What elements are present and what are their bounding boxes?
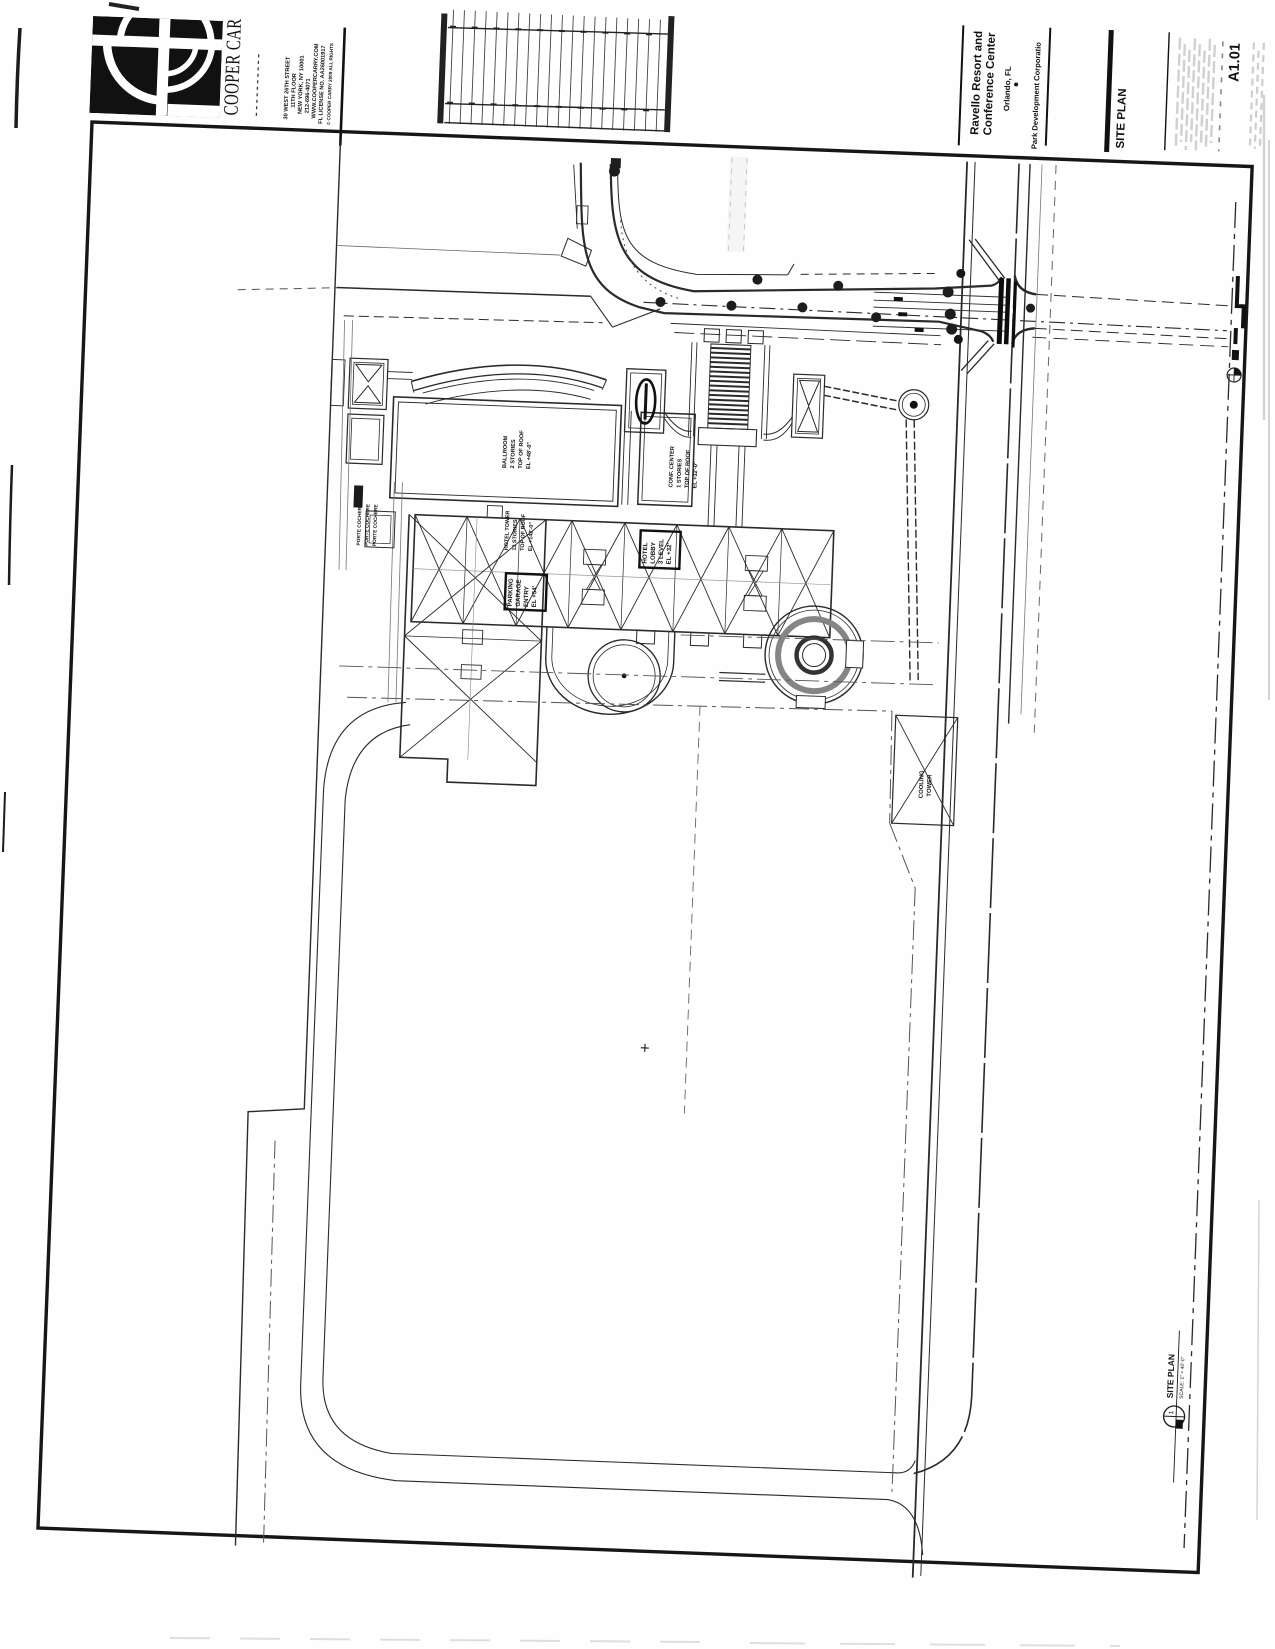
svg-text:PORTE COCHERE: PORTE COCHERE	[364, 503, 372, 546]
svg-text:HOTEL TOWER: HOTEL TOWER	[504, 510, 512, 550]
svg-text:GARAGE: GARAGE	[515, 579, 523, 606]
svg-text:HOTEL: HOTEL	[641, 542, 649, 563]
svg-text:3 LEVEL: 3 LEVEL	[657, 539, 665, 565]
svg-text:Park Development Corporatio: Park Development Corporatio	[1030, 42, 1043, 150]
svg-text:1: 1	[1168, 1410, 1175, 1414]
svg-text:LOBBY: LOBBY	[649, 541, 657, 564]
svg-text:EL +54': EL +54'	[531, 585, 539, 607]
svg-text:EL +142'-0": EL +142'-0"	[528, 522, 535, 552]
svg-text:1 STORIES: 1 STORIES	[676, 458, 683, 488]
svg-text:EL +48'-0": EL +48'-0"	[526, 442, 533, 470]
svg-text:Conference Center: Conference Center	[982, 32, 998, 136]
svg-text:TOWER: TOWER	[927, 774, 934, 797]
svg-text:2 STORIES: 2 STORIES	[510, 439, 517, 469]
svg-text:TOP OF ROOF: TOP OF ROOF	[520, 513, 527, 551]
svg-text:SCALE: 1" = 40'-0": SCALE: 1" = 40'-0"	[1179, 1356, 1187, 1399]
svg-text:PORTE COCHERE: PORTE COCHERE	[372, 503, 380, 546]
svg-text:PARKING: PARKING	[507, 578, 515, 607]
svg-text:TOP OF ROOF: TOP OF ROOF	[518, 430, 525, 469]
svg-text:30 WEST 26TH STREET: 30 WEST 26TH STREET	[283, 56, 291, 120]
svg-text:SITE PLAN: SITE PLAN	[1115, 88, 1129, 148]
svg-text:PORTE COCHERE: PORTE COCHERE	[356, 503, 364, 546]
svg-text:TOP OF ROOF: TOP OF ROOF	[684, 449, 691, 488]
svg-text:A1.01: A1.01	[1226, 43, 1243, 82]
svg-text:Orlando, FL: Orlando, FL	[1002, 66, 1013, 111]
svg-text:EL +32': EL +32'	[665, 542, 673, 564]
svg-text:EL +32'-0": EL +32'-0"	[692, 461, 699, 489]
svg-text:CONF. CENTER: CONF. CENTER	[668, 446, 676, 488]
svg-text:BALLROOM: BALLROOM	[502, 435, 509, 468]
svg-text:13 STORIES: 13 STORIES	[512, 519, 519, 551]
svg-text:COOLING: COOLING	[919, 770, 926, 799]
svg-text:ENTRY: ENTRY	[523, 585, 531, 607]
svg-text:SITE PLAN: SITE PLAN	[1165, 1354, 1177, 1399]
svg-text:COOPER CAR: COOPER CAR	[220, 18, 246, 116]
